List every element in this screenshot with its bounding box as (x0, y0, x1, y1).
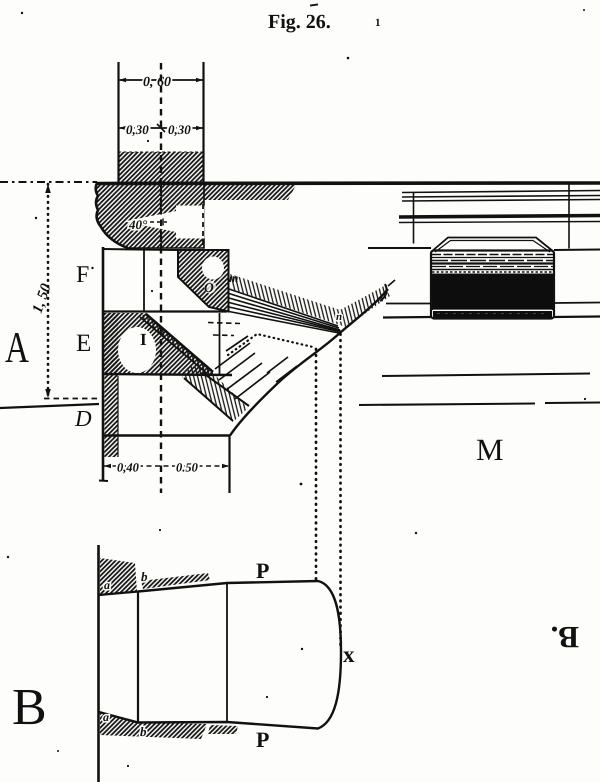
svg-text:0,30: 0,30 (126, 122, 149, 137)
svg-text:40°: 40° (128, 217, 148, 232)
svg-text:0, 60: 0, 60 (143, 75, 171, 90)
svg-text:a: a (104, 578, 110, 592)
svg-text:A: A (5, 323, 29, 372)
svg-text:I: I (140, 330, 147, 349)
svg-text:P: P (256, 727, 269, 752)
svg-text:1: 1 (375, 17, 381, 29)
svg-text:Fig. 26.: Fig. 26. (268, 11, 331, 33)
svg-text:b: b (140, 724, 147, 739)
svg-text:0,30: 0,30 (168, 122, 191, 137)
svg-text:P: P (256, 558, 269, 583)
svg-text:E: E (76, 330, 91, 357)
svg-text:B: B (12, 679, 47, 736)
svg-text:B.: B. (551, 620, 579, 655)
svg-text:F: F (76, 262, 89, 288)
svg-text:x: x (343, 642, 355, 667)
svg-text:b: b (141, 569, 148, 584)
svg-text:0,40: 0,40 (117, 461, 140, 475)
svg-text:a: a (103, 710, 109, 724)
svg-text:O: O (204, 280, 214, 295)
svg-text:D: D (74, 406, 92, 431)
svg-text:M: M (476, 432, 504, 467)
svg-text:n: n (336, 311, 342, 323)
svg-text:0.50: 0.50 (176, 461, 199, 475)
